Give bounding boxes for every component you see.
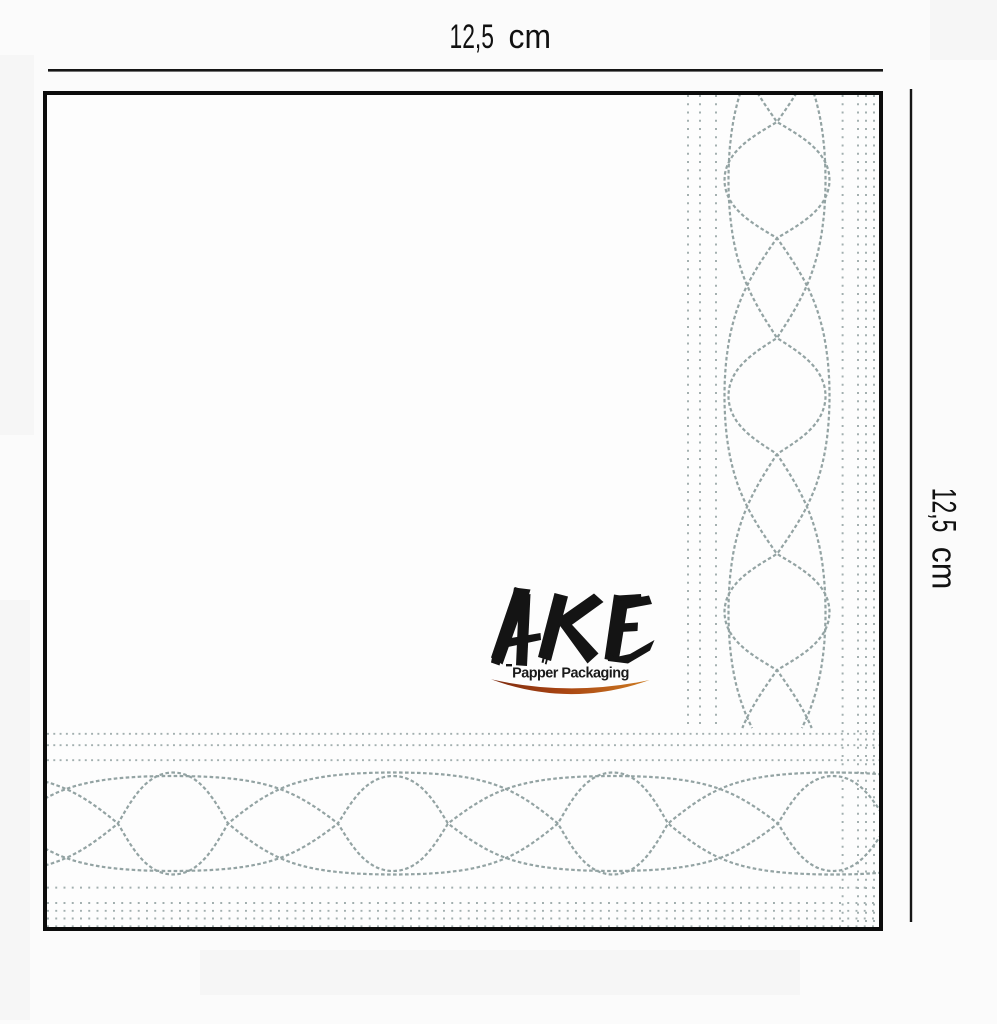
- svg-text:12,5: 12,5: [450, 18, 495, 56]
- svg-text:cm: cm: [509, 18, 552, 56]
- svg-text:Papper Packaging: Papper Packaging: [512, 666, 629, 682]
- svg-text:cm: cm: [925, 547, 963, 590]
- svg-text:12,5: 12,5: [925, 488, 963, 533]
